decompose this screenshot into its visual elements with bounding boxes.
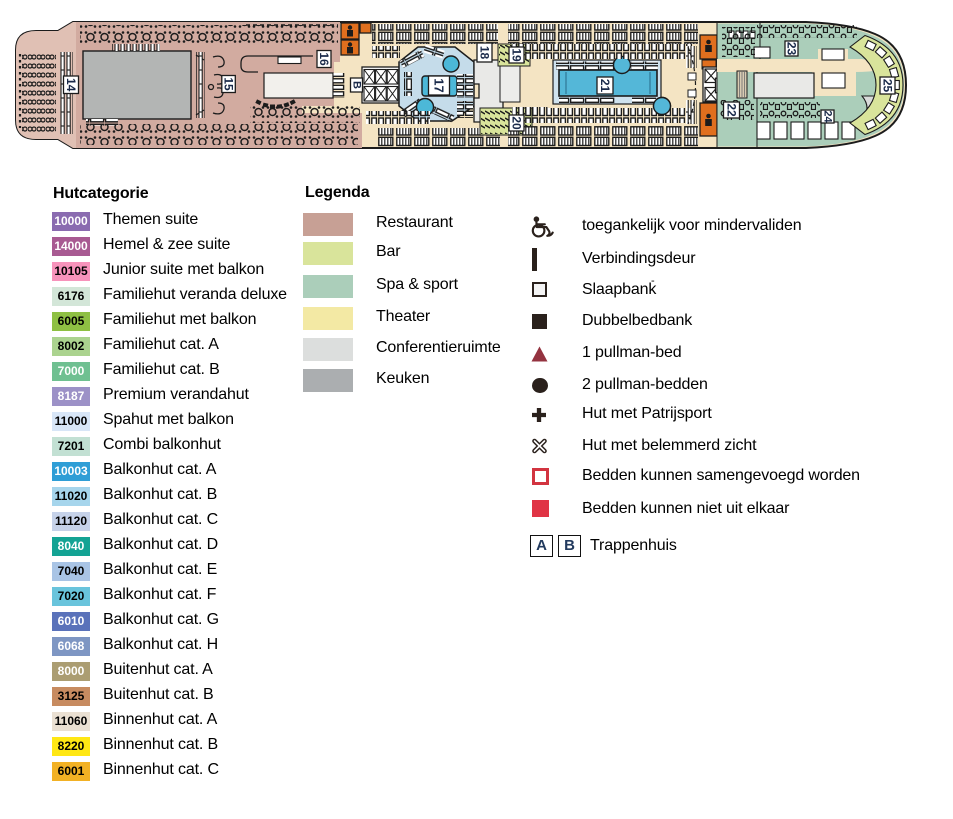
svg-text:22: 22 [725, 103, 739, 117]
svg-text:14: 14 [64, 78, 78, 92]
svg-text:B: B [351, 81, 363, 89]
svg-text:24: 24 [822, 110, 834, 123]
svg-text:17: 17 [432, 78, 447, 92]
svg-text:16: 16 [317, 52, 331, 66]
svg-text:20: 20 [510, 116, 524, 130]
svg-text:19: 19 [510, 48, 524, 62]
svg-text:21: 21 [598, 79, 612, 93]
svg-text:18: 18 [478, 46, 492, 60]
svg-text:23: 23 [785, 42, 799, 56]
svg-text:25: 25 [881, 79, 895, 93]
svg-text:15: 15 [222, 77, 236, 91]
